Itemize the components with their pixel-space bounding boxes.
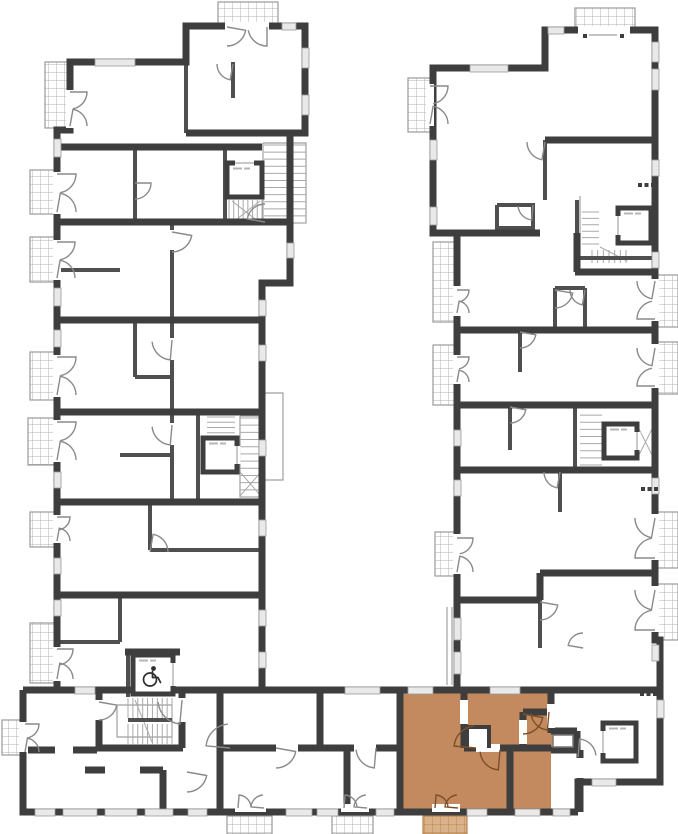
window [652,478,659,494]
floor-plan-page [0,0,678,834]
shaft [467,727,489,748]
window [652,252,659,268]
door-opening [651,279,659,321]
elevator [604,424,641,458]
window [54,139,61,157]
window [259,440,266,456]
door-opening [426,84,434,126]
balcony [30,512,57,547]
window [408,687,433,694]
window [259,300,266,316]
balcony [30,237,57,282]
wall-mark [638,183,642,187]
wall-mark [651,183,655,187]
balcony [218,2,278,24]
wall-mark [640,692,644,696]
door-opening [576,758,584,778]
window [259,520,266,536]
window [54,558,61,574]
window [188,809,207,816]
window [259,610,266,626]
window [317,809,338,816]
window [345,687,380,694]
window [63,809,97,816]
wall-mark [654,487,658,491]
window [259,345,266,361]
balcony [28,418,55,465]
floor-plan [0,0,678,834]
window [652,160,659,176]
window [657,700,664,718]
window [287,243,294,258]
elevator [227,160,262,198]
elevator [615,208,652,243]
window [430,140,437,160]
accessible-elevator [133,655,177,694]
window [548,27,564,34]
wall-mark [583,34,587,38]
wall-mark [645,183,649,187]
window [54,288,61,306]
wall-mark [641,487,645,491]
balcony [30,170,57,214]
wall-mark [620,34,624,38]
window [467,809,487,816]
window [105,809,137,816]
window [592,779,616,786]
window [454,480,461,496]
balcony [30,352,57,400]
window [376,809,394,816]
selected-apartment-balcony [423,816,467,834]
elevator [600,723,637,761]
balcony [332,816,373,834]
window [282,23,296,30]
wall-mark [653,692,657,696]
window [302,95,309,115]
window [54,330,61,347]
window [54,600,61,616]
window [652,42,659,62]
window [75,687,95,694]
door-opening [460,700,468,724]
balcony [227,816,272,834]
window [454,430,461,446]
window [470,65,508,72]
window [652,645,659,661]
window [54,472,61,488]
door-opening [354,744,376,752]
window [286,809,312,816]
window [490,687,520,694]
window [454,618,461,640]
door-opening [55,746,73,754]
window [259,652,266,668]
door-opening [578,26,630,34]
balcony [30,623,55,683]
wall-mark [647,692,651,696]
door-opening [225,22,269,30]
elevator [203,438,241,472]
window [35,809,55,816]
window [553,809,570,816]
window [430,207,437,225]
window [145,809,173,816]
shaft [553,735,573,747]
wall-mark [648,487,652,491]
door-opening [519,720,527,744]
window [95,59,135,66]
window [652,69,659,90]
window [454,652,461,674]
window [302,48,309,68]
window [515,809,540,816]
